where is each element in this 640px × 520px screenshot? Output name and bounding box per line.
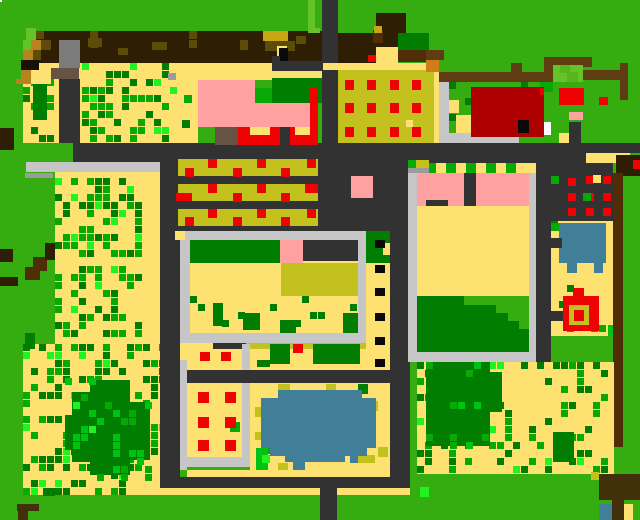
map-canvas[interactable] — [0, 0, 640, 520]
game-map — [0, 0, 640, 520]
